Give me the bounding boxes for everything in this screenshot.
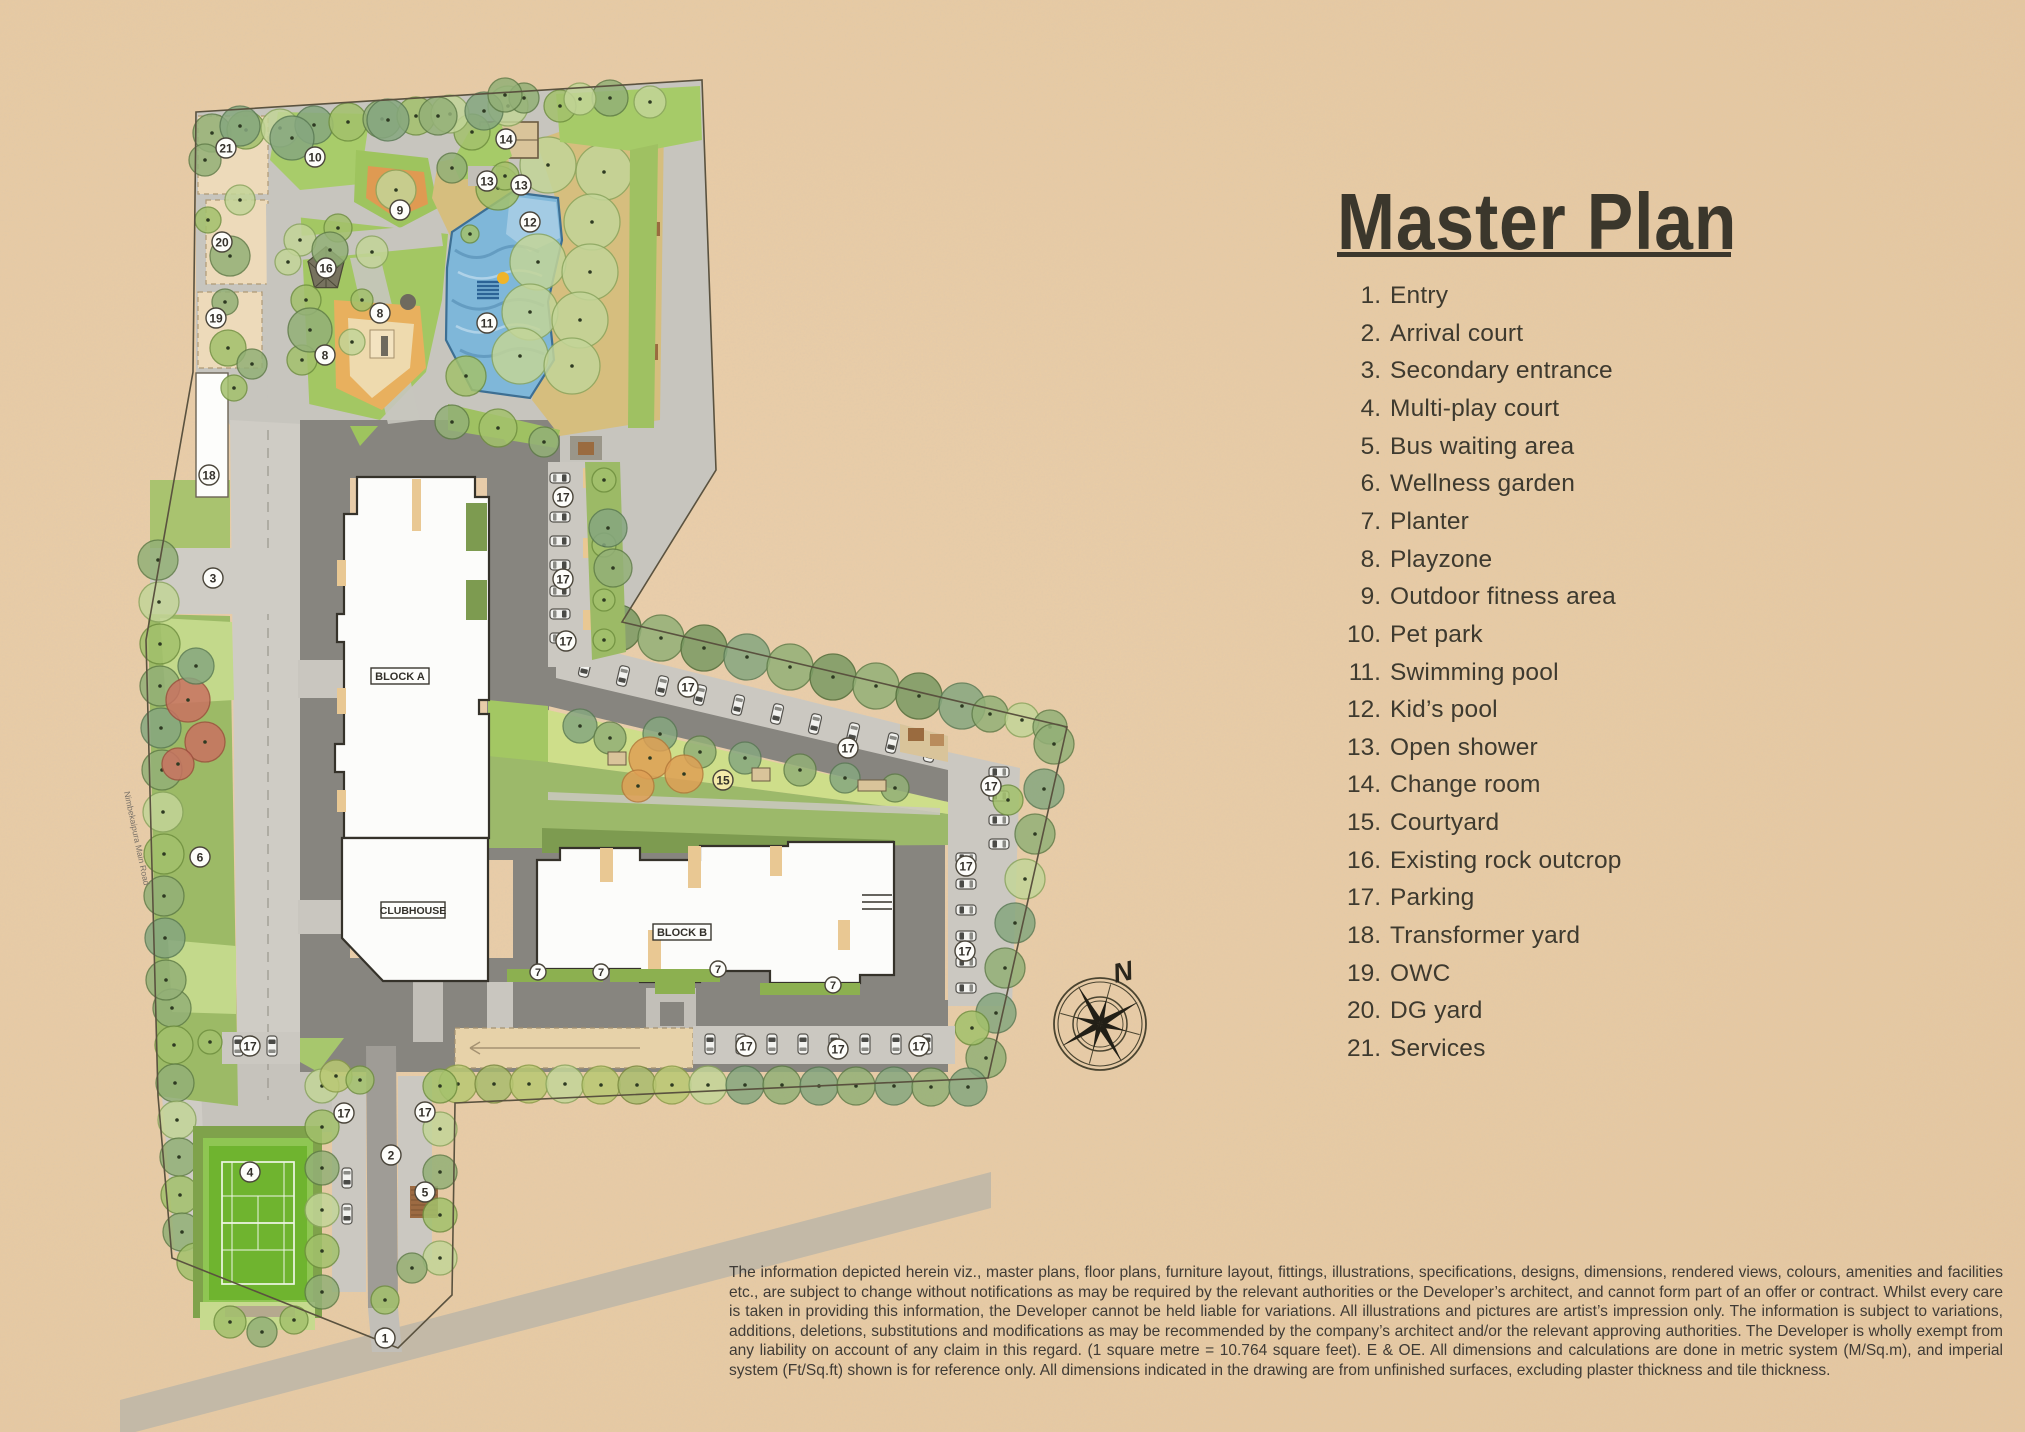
svg-text:16: 16 bbox=[319, 261, 333, 275]
svg-text:2: 2 bbox=[388, 1148, 395, 1162]
svg-text:19: 19 bbox=[209, 311, 223, 325]
svg-text:17: 17 bbox=[831, 1042, 845, 1056]
svg-text:7: 7 bbox=[535, 967, 541, 979]
svg-text:6: 6 bbox=[197, 850, 204, 864]
svg-text:17: 17 bbox=[681, 680, 695, 694]
svg-text:CLUBHOUSE: CLUBHOUSE bbox=[380, 905, 447, 917]
svg-text:17: 17 bbox=[418, 1105, 432, 1119]
svg-text:7: 7 bbox=[715, 964, 721, 976]
svg-text:13: 13 bbox=[514, 178, 528, 192]
svg-text:17: 17 bbox=[556, 572, 570, 586]
svg-text:13: 13 bbox=[480, 174, 494, 188]
svg-text:17: 17 bbox=[559, 634, 573, 648]
svg-text:8: 8 bbox=[377, 306, 384, 320]
svg-text:14: 14 bbox=[499, 132, 513, 146]
svg-text:17: 17 bbox=[243, 1039, 257, 1053]
svg-text:10: 10 bbox=[308, 150, 322, 164]
svg-text:17: 17 bbox=[337, 1106, 351, 1120]
svg-text:1: 1 bbox=[382, 1331, 389, 1345]
svg-text:18: 18 bbox=[202, 468, 216, 482]
svg-text:BLOCK A: BLOCK A bbox=[375, 671, 425, 683]
svg-text:17: 17 bbox=[841, 741, 855, 755]
svg-text:7: 7 bbox=[598, 967, 604, 979]
svg-text:17: 17 bbox=[556, 490, 570, 504]
svg-text:12: 12 bbox=[523, 215, 537, 229]
svg-text:11: 11 bbox=[481, 316, 494, 330]
svg-text:17: 17 bbox=[958, 944, 972, 958]
svg-text:7: 7 bbox=[830, 980, 836, 992]
svg-text:21: 21 bbox=[219, 141, 233, 155]
svg-text:4: 4 bbox=[247, 1165, 254, 1179]
svg-text:5: 5 bbox=[422, 1185, 429, 1199]
svg-text:17: 17 bbox=[984, 779, 998, 793]
svg-text:17: 17 bbox=[739, 1039, 753, 1053]
svg-text:9: 9 bbox=[397, 203, 404, 217]
svg-text:17: 17 bbox=[912, 1039, 926, 1053]
svg-text:15: 15 bbox=[716, 773, 730, 787]
svg-text:BLOCK B: BLOCK B bbox=[657, 927, 707, 939]
svg-text:3: 3 bbox=[210, 571, 217, 585]
svg-text:20: 20 bbox=[215, 235, 229, 249]
svg-text:17: 17 bbox=[959, 859, 973, 873]
svg-text:8: 8 bbox=[322, 348, 329, 362]
